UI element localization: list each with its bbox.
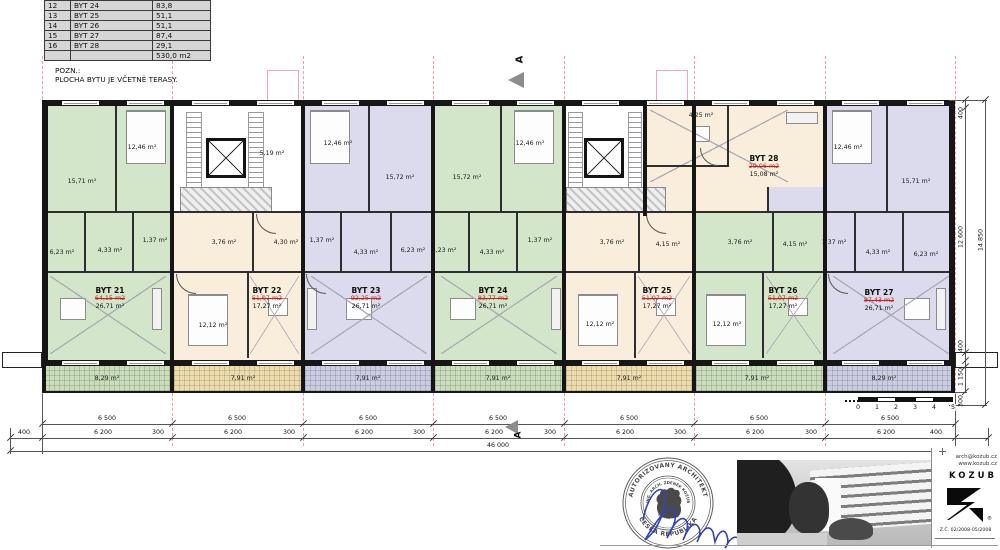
bed — [126, 110, 166, 164]
dimension-label: 6 200 — [223, 429, 243, 436]
party-wall — [692, 106, 696, 360]
apartment-name: BYT 21 — [95, 286, 125, 295]
revision-box — [656, 70, 688, 102]
inner-wall — [516, 212, 518, 272]
dimension-label: 6 200 — [484, 429, 504, 436]
module-line — [955, 56, 956, 446]
section-marker-a-bottom: A — [513, 432, 523, 439]
room-area-label: 4,33 m² — [866, 249, 891, 256]
apartment-label-byt28: BYT 28 29,06 m2 15,08 m² — [749, 154, 779, 179]
revision-box — [267, 70, 299, 102]
dimension-label: 400 — [958, 340, 965, 352]
inner-wall — [902, 212, 904, 272]
apartment-name: BYT 23 — [351, 286, 381, 295]
building-photo — [737, 460, 935, 545]
dimension-label: 6 500 — [97, 415, 117, 422]
apartment-name: BYT 26 — [768, 286, 798, 295]
room-area-label: 6,23 m² — [50, 249, 75, 256]
apartment-room-area: 17,27 m² — [768, 303, 798, 311]
room-area-label: 12,12 m² — [713, 321, 742, 328]
dimension-label: 300 — [958, 395, 965, 407]
inner-wall — [48, 211, 949, 213]
terrace-area-label: 7,91 m² — [745, 375, 770, 382]
photo-tree — [789, 482, 829, 534]
dimension-total-label: 14 850 — [978, 229, 985, 251]
apartment-gross-area: 51,07 m2 — [768, 295, 798, 303]
dimension-line — [42, 424, 955, 425]
apartment-room-area: 26,71 m² — [95, 303, 125, 311]
apartment-label-byt21: BYT 21 64,15 m2 26,71 m² — [95, 286, 125, 311]
apartment-label-byt23: BYT 23 92,25 m2 26,71 m² — [351, 286, 381, 311]
dimension-label: 6 500 — [227, 415, 247, 422]
room-area-label: 1,37 m² — [143, 237, 168, 244]
apartment-name: BYT 22 — [252, 286, 282, 295]
registered-mark: ® — [987, 516, 992, 522]
scale-number: 1 — [874, 404, 880, 411]
apartment-gross-area: 64,15 m2 — [95, 295, 125, 303]
bed — [706, 294, 746, 346]
scale-number: 2 — [893, 404, 899, 411]
terrace-post — [951, 366, 955, 391]
inner-wall — [252, 212, 254, 272]
inner-wall — [468, 212, 470, 272]
scale-number: 5 — [950, 404, 956, 411]
table-cell: BYT 25 — [71, 11, 153, 21]
room-area-label: 12,46 m² — [516, 140, 545, 147]
window-glass-line — [48, 363, 949, 364]
extension-line — [42, 394, 43, 454]
table-cell: 29,1 — [153, 41, 211, 51]
room-area-label: 4,15 m² — [783, 241, 808, 248]
room-area-label: 12,12 m² — [586, 321, 615, 328]
terrace-post — [562, 366, 566, 391]
inner-wall — [132, 212, 134, 272]
apartment-label-byt27: BYT 27 87,43 m2 26,71 m² — [864, 288, 894, 313]
room-area-label: 1,37 m² — [310, 237, 335, 244]
scale-bar-dots — [845, 400, 858, 402]
apartment-gross-area: 87,43 m2 — [864, 297, 894, 305]
photo-tree — [737, 460, 797, 542]
table-cell: 13 — [45, 11, 71, 21]
scale-bar-segment — [877, 397, 896, 402]
terrace-area-label: 7,91 m² — [486, 375, 511, 382]
apartment-room-area: 17,27 m² — [252, 303, 282, 311]
apartment-name: BYT 24 — [478, 286, 508, 295]
room-area-label: 6,23 m² — [914, 251, 939, 258]
apartment-gross-area: 51,07 m2 — [642, 295, 672, 303]
table-cell: 16 — [45, 41, 71, 51]
terrace-edge — [42, 391, 955, 393]
table-cell — [45, 51, 71, 61]
floor-plan-sheet: 12BYT 2483,8 13BYT 2551,1 14BYT 2651,1 1… — [0, 0, 1000, 550]
dimension-label: 6 200 — [615, 429, 635, 436]
terrace-area-label: 8,29 m² — [872, 375, 897, 382]
extension-line — [949, 100, 987, 101]
party-wall — [170, 106, 174, 360]
dimension-label: 1 150 — [958, 368, 965, 386]
scale-bar-segment — [915, 397, 934, 402]
terrace-post — [42, 366, 46, 391]
logo-email: arch@kozub.cz — [956, 454, 997, 460]
dimension-label: 6 500 — [619, 415, 639, 422]
scale-bar-segment — [896, 397, 915, 402]
terrace-post — [692, 366, 696, 391]
exterior-wall-left — [42, 100, 48, 366]
terrace-post — [431, 366, 435, 391]
inner-wall — [886, 106, 888, 212]
tick-mark — [942, 448, 943, 455]
note-line2: PLOCHA BYTU JE VČETNĚ TERASY. — [55, 76, 177, 85]
room-area-label: 6,23 m² — [401, 247, 426, 254]
logo-web: www.kozub.cz — [958, 461, 997, 467]
photo-ground — [737, 533, 827, 545]
room-area-label: 12,46 m² — [324, 140, 353, 147]
apartment-room-area: 17,27 m² — [642, 303, 672, 311]
dimension-label: 6 500 — [749, 415, 769, 422]
table-cell: BYT 27 — [71, 31, 153, 41]
logo-block: arch@kozub.cz www.kozub.cz KOZUB ® Z.Č. … — [931, 446, 1000, 550]
party-wall — [823, 106, 827, 360]
dimension-label: 6 200 — [93, 429, 113, 436]
extension-line — [10, 428, 11, 454]
stair-treads — [568, 112, 583, 192]
inner-wall — [767, 187, 769, 212]
terrace-area-label: 7,91 m² — [356, 375, 381, 382]
entry-mat — [180, 187, 272, 213]
logo-underline — [935, 538, 995, 539]
stair-treads — [186, 112, 202, 192]
room-area-label: 6,23 m² — [432, 247, 457, 254]
room-area-label: 4,33 m² — [354, 249, 379, 256]
inner-wall — [368, 106, 370, 212]
room-area-label: 4,15 m² — [656, 241, 681, 248]
room-area-label: 4,30 m² — [274, 239, 299, 246]
dimension-label: 6 200 — [354, 429, 374, 436]
room-area-label: 12,46 m² — [128, 144, 157, 151]
table-cell: 14 — [45, 21, 71, 31]
bed — [578, 294, 618, 346]
dimension-label: 300 — [282, 429, 296, 436]
apartment-name: BYT 25 — [642, 286, 672, 295]
bed — [832, 110, 872, 164]
byt28-wall — [643, 106, 647, 216]
scale-number: 3 — [912, 404, 918, 411]
apartment-room-area: 26,71 m² — [864, 305, 894, 313]
terrace-area-label: 7,91 m² — [617, 375, 642, 382]
dimension-label: 300 — [673, 429, 687, 436]
dimension-label: 300 — [412, 429, 426, 436]
dimension-label: 300 — [151, 429, 165, 436]
entry-mat — [566, 187, 666, 213]
photo-bush — [829, 518, 873, 540]
dimension-label: 300 — [543, 429, 557, 436]
inner-wall — [772, 212, 774, 272]
scale-number: 0 — [855, 404, 861, 411]
table-cell: 530,0 m2 — [153, 51, 211, 61]
dimension-label: 6 200 — [745, 429, 765, 436]
dimension-line — [10, 438, 988, 439]
inner-wall — [854, 212, 856, 272]
apartment-label-byt25: BYT 25 51,07 m2 17,27 m² — [642, 286, 672, 311]
table-cell: BYT 28 — [71, 41, 153, 51]
apartment-room-area: 26,71 m² — [478, 303, 508, 311]
apartment-gross-area: 92,25 m2 — [351, 295, 381, 303]
room-area-label: 3,76 m² — [212, 239, 237, 246]
elevator-shaft — [206, 138, 246, 178]
room-area-label: 4,33 m² — [98, 247, 123, 254]
logo-reg-number: Z.Č. 02/2008-05/2008 — [931, 528, 1000, 533]
terrace-area-label: 7,91 m² — [231, 375, 256, 382]
room-area-label: 4,33 m² — [480, 249, 505, 256]
scale-number: 4 — [931, 404, 937, 411]
table-cell: 15 — [45, 31, 71, 41]
room-area-label: 1,37 m² — [528, 237, 553, 244]
sofa — [786, 112, 818, 124]
dimension-label: 6 500 — [358, 415, 378, 422]
room-area-label: 15,71 m² — [68, 178, 97, 185]
inner-wall — [500, 106, 502, 212]
bed — [310, 110, 350, 164]
inner-wall — [727, 106, 729, 166]
inner-wall — [390, 212, 392, 272]
inner-wall — [48, 271, 949, 273]
table-cell: 87,4 — [153, 31, 211, 41]
dimension-line — [10, 451, 988, 452]
sheet-border-line — [600, 545, 998, 546]
apartment-room-area: 15,08 m² — [749, 171, 779, 179]
dimension-label: 400 — [17, 429, 31, 436]
dimension-tick — [982, 401, 989, 408]
inner-wall — [247, 272, 249, 358]
scale-bar-segment — [858, 397, 877, 402]
bed — [188, 294, 228, 346]
party-wall — [431, 106, 435, 360]
elevator-shaft — [584, 138, 624, 178]
terrace-post — [170, 366, 174, 391]
room-area-label: 5,19 m² — [260, 150, 285, 157]
party-wall — [562, 106, 566, 360]
apartment-label-byt24: BYT 24 83,77 m2 26,71 m² — [478, 286, 508, 311]
table-cell: BYT 24 — [71, 1, 153, 11]
logo-divider — [931, 448, 932, 548]
dimension-label: 6 200 — [876, 429, 896, 436]
room-area-label: 1,37 m² — [822, 239, 847, 246]
room-area-label: 15,72 m² — [386, 174, 415, 181]
balcony-slab-left — [2, 352, 42, 368]
apartment-label-byt26: BYT 26 51,07 m2 17,27 m² — [768, 286, 798, 311]
dimension-label: 300 — [804, 429, 818, 436]
bed — [514, 110, 554, 164]
table-cell: 12 — [45, 1, 71, 11]
dimension-line — [965, 100, 966, 392]
kozub-logo-icon — [945, 484, 985, 524]
exterior-wall-right — [949, 100, 955, 366]
apartment-gross-area: 51,07 m2 — [252, 295, 282, 303]
table-cell: 83,8 — [153, 1, 211, 11]
stair-treads — [628, 112, 642, 192]
room-area-label: 15,71 m² — [902, 178, 931, 185]
inner-wall — [84, 212, 86, 272]
room-area-label: 12,12 m² — [199, 322, 228, 329]
inner-wall — [638, 212, 640, 272]
apartment-room-area: 26,71 m² — [351, 303, 381, 311]
terrace-post — [823, 366, 827, 391]
scale-bar-segment — [934, 397, 953, 402]
note: POZN.: PLOCHA BYTU JE VČETNĚ TERASY. — [55, 67, 177, 85]
apartment-name: BYT 27 — [864, 288, 894, 297]
dimension-total-label: 46 000 — [486, 442, 510, 449]
byt27-entry-corridor — [769, 187, 823, 212]
inner-wall — [115, 106, 117, 212]
dimension-line — [985, 100, 986, 406]
room-area-label: 4,25 m² — [689, 112, 714, 119]
terrace-area-label: 8,29 m² — [95, 375, 120, 382]
room-area-label: 12,46 m² — [834, 144, 863, 151]
window-glass-line — [48, 103, 949, 104]
section-marker-a-top: A — [514, 56, 525, 64]
inner-wall — [634, 272, 636, 358]
apartment-label-byt22: BYT 22 51,07 m2 17,27 m² — [252, 286, 282, 311]
dimension-label: 400 — [929, 429, 943, 436]
dimension-label: 12 600 — [958, 226, 965, 248]
inner-wall — [762, 272, 764, 358]
inner-wall — [340, 212, 342, 272]
logo-name: KOZUB — [949, 471, 997, 481]
apartment-gross-area: 83,77 m2 — [478, 295, 508, 303]
table-cell: BYT 26 — [71, 21, 153, 31]
room-area-label: 3,76 m² — [600, 239, 625, 246]
dimension-label: 6 500 — [880, 415, 900, 422]
room-area-label: 3,76 m² — [728, 239, 753, 246]
section-arrow-icon — [508, 72, 524, 88]
apartment-name: BYT 28 — [749, 154, 779, 163]
terrace-post — [301, 366, 305, 391]
party-wall — [301, 106, 305, 360]
table-cell: 51,1 — [153, 11, 211, 21]
apartment-gross-area: 29,06 m2 — [749, 163, 779, 171]
extension-line — [955, 394, 956, 454]
flat-area-table: 12BYT 2483,8 13BYT 2551,1 14BYT 2651,1 1… — [44, 0, 211, 61]
table-cell: 51,1 — [153, 21, 211, 31]
table-cell — [71, 51, 153, 61]
dimension-tick — [962, 388, 969, 395]
room-area-label: 15,72 m² — [453, 174, 482, 181]
